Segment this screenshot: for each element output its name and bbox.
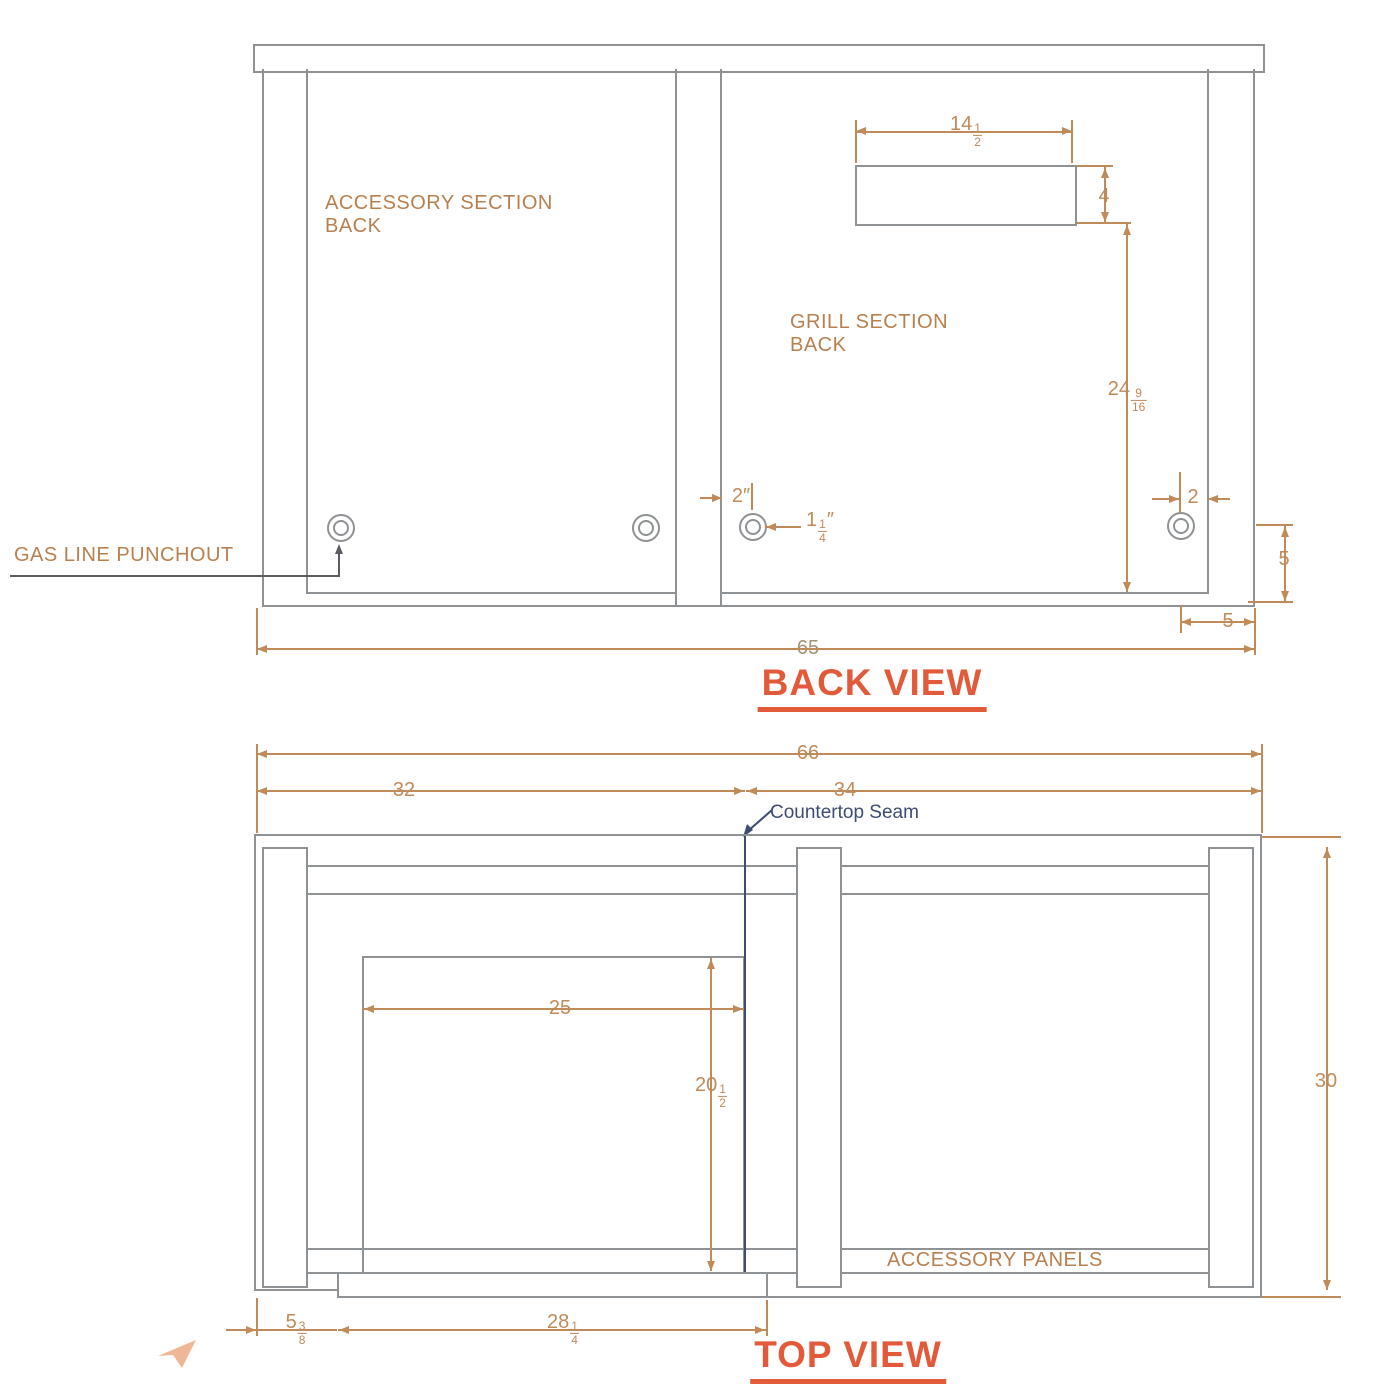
backview-rail-left [306,592,677,594]
topview-inner-front-line1 [308,1248,1209,1250]
dim5h-arrow-left [1181,618,1191,626]
dim30-arrow-bottom [1323,1280,1331,1290]
gas-punchout-circle-4-inner [1173,518,1189,534]
dim65-line [256,648,1255,650]
dim66-ext-right [1261,744,1263,833]
dim24-arrow-top [1123,225,1131,235]
dim14-arrow-left [856,127,866,135]
dim28-ext [766,1300,768,1336]
accessory-section-label-line1: ACCESSORY SECTION [325,192,553,215]
backview-divider-right [720,69,722,607]
dim66-arrow-right [1251,750,1261,758]
top-view-title: TOP VIEW [750,1334,946,1384]
gas-punchout-circle-3-inner [745,519,761,535]
dim32-line [256,790,745,792]
gas-leader-horizontal [10,575,340,577]
grill-section-label-line1: GRILL SECTION [790,311,948,334]
countertop-seam-label: Countertop Seam [770,803,919,822]
topview-post-middle [796,847,842,1288]
topview-bumpout-left [337,1272,339,1298]
topview-left-edge [254,834,256,1290]
topview-top-edge [254,834,1262,836]
dim4-ext-top [1077,165,1113,167]
dim65-arrow-left [257,645,267,653]
dim32-arrow-left [257,787,267,795]
backview-divider-left [675,69,677,607]
dim66-line [256,753,1262,755]
dim30-arrow-top [1323,848,1331,858]
gas-punchout-circle-1-inner [333,520,349,536]
backview-right-stile [1207,69,1209,593]
dim34-arrow-right [1251,787,1261,795]
dim-punchout-offset-grill-label: 2″ [729,486,753,506]
dim2b-ext [1179,472,1181,513]
dim2b-arrow-right [1208,495,1218,503]
grill-well-left [362,956,364,1272]
gas-line-punchout-label: GAS LINE PUNCHOUT [14,544,234,567]
dim5v-line [1284,526,1286,601]
dim30-ext-top [1262,836,1341,838]
topview-inner-back-line2 [308,893,1209,895]
dim34-arrow-left [747,787,757,795]
topview-inner-back-line1 [308,865,1209,867]
dim5h-arrow-right [1244,618,1254,626]
grill-section-back-label: GRILL SECTION BACK [790,311,948,357]
dim5v-ext-bottom [1248,601,1293,603]
dim4-ext-bottom [1077,222,1131,224]
gas-leader-arrow [335,544,343,554]
back-view-title: BACK VIEW [758,662,987,712]
dim1q-arrow [766,523,776,531]
dim14-arrow-right [1062,127,1072,135]
topview-post-left [262,847,308,1288]
backview-rail-right [720,592,1209,594]
backview-right-edge [1253,69,1255,607]
logo-swoosh-mark [156,1338,202,1372]
dim28-line [338,1329,766,1331]
blueprint-canvas: ACCESSORY SECTION BACK GRILL SECTION BAC… [0,0,1400,1400]
dim66-arrow-left [257,750,267,758]
backview-left-edge [262,69,264,607]
dim2b-arrow-left [1169,495,1179,503]
dim2a-arrow [712,494,722,502]
grill-well-top [362,956,745,958]
backview-countertop-slab [253,44,1265,73]
dim25-arrow-left [364,1005,374,1013]
dim5f-arrow [246,1326,256,1334]
dim25-line [363,1008,744,1010]
accessory-section-back-label: ACCESSORY SECTION BACK [325,192,553,238]
dim5v-ext-top [1256,524,1293,526]
dim5f-line [257,1329,337,1331]
topview-bottom-left [254,1289,339,1291]
dim4-arrow-top [1101,168,1109,178]
dim14-line [855,131,1073,133]
dim34-line [746,790,1261,792]
dim30-ext-bottom [1262,1296,1341,1298]
dim5v-arrow-bottom [1281,591,1289,601]
accessory-panels-label: ACCESSORY PANELS [887,1249,1103,1272]
dim-punchout-offset-right-label: 2 [1184,487,1201,507]
dim4-arrow-bottom [1101,212,1109,222]
dim25-arrow-right [733,1005,743,1013]
backview-left-stile [306,69,308,593]
topview-bumpout-bottom [337,1296,768,1298]
topview-bottom-right [766,1296,1262,1298]
gas-punchout-circle-2-inner [638,520,654,536]
dim30-line [1326,847,1328,1290]
dim28-arrow-left [339,1326,349,1334]
dim2a-ext [751,483,753,510]
dim24-arrow-bottom [1123,582,1131,592]
topview-bumpout-right [766,1272,768,1298]
countertop-seam-line [744,836,746,1272]
dim28-arrow-right [755,1326,765,1334]
dim5v-arrow-top [1281,527,1289,537]
topview-right-edge [1260,834,1262,1297]
dim-punchout-diameter-label: 114″ [803,510,837,544]
backview-vent-cutout [855,165,1077,226]
dim20-arrow-bottom [707,1261,715,1271]
dim24-line [1126,224,1128,592]
dim20-arrow-top [707,959,715,969]
topview-post-right [1208,847,1254,1288]
topview-inner-front-line2 [308,1272,1209,1274]
accessory-section-label-line2: BACK [325,215,553,238]
grill-section-label-line2: BACK [790,334,948,357]
dim32-arrow-right [734,787,744,795]
backview-bottom-edge [262,605,1255,607]
dim65-arrow-right [1244,645,1254,653]
dim20-line [710,958,712,1271]
